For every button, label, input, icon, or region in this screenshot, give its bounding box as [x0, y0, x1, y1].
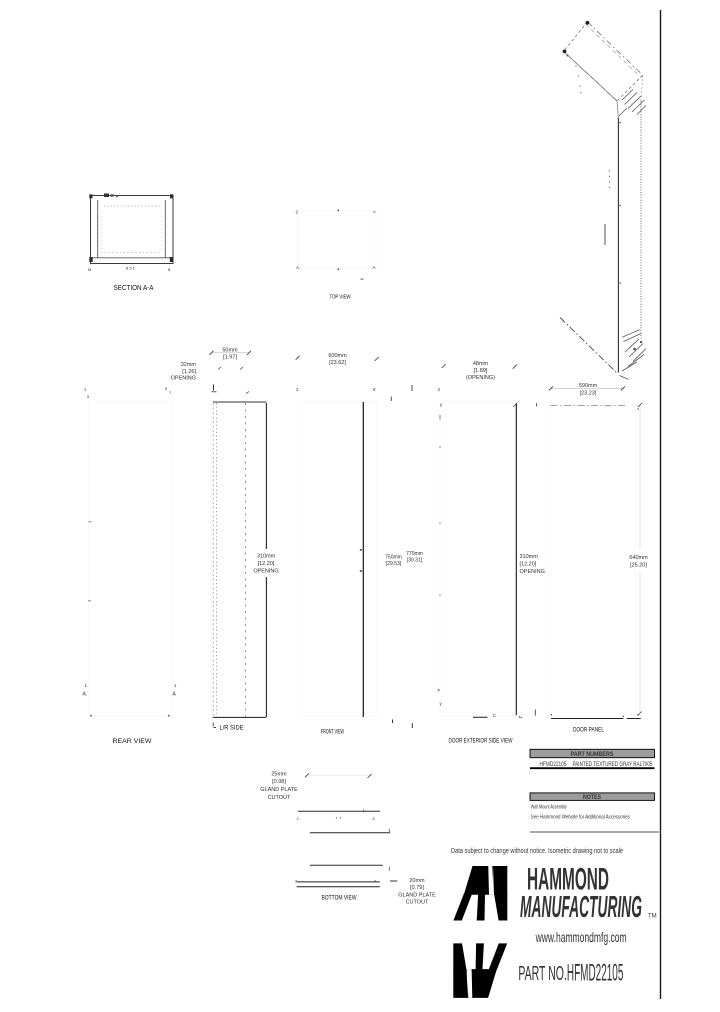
- svg-text:DOOR PANEL: DOOR PANEL: [573, 728, 605, 734]
- svg-text:[25.20]: [25.20]: [630, 563, 647, 569]
- svg-text:HFMD22105: HFMD22105: [540, 762, 568, 768]
- svg-text:CUTOUT: CUTOUT: [268, 795, 291, 801]
- svg-text:32mm: 32mm: [181, 362, 197, 368]
- svg-text:Data subject to change without: Data subject to change without notice. I…: [451, 848, 623, 855]
- svg-text:OPENING: OPENING: [520, 569, 545, 575]
- svg-text:PART NUMBERS: PART NUMBERS: [571, 752, 614, 758]
- svg-text:OPENING: OPENING: [253, 569, 278, 575]
- svg-text:SECTION A-A: SECTION A-A: [114, 285, 154, 292]
- svg-text:[1.89]: [1.89]: [474, 368, 488, 374]
- svg-text:[12.20]: [12.20]: [520, 562, 537, 568]
- svg-text:[30.31]: [30.31]: [407, 558, 423, 564]
- svg-text:[0.98]: [0.98]: [272, 779, 286, 785]
- svg-text:310mm: 310mm: [257, 554, 276, 560]
- svg-text:See Hammond Website for Additi: See Hammond Website for Additional Acces…: [531, 814, 630, 820]
- svg-text:600mm: 600mm: [328, 353, 347, 359]
- svg-text:OPENING: OPENING: [171, 376, 196, 382]
- svg-text:F: F: [438, 688, 441, 693]
- svg-text:[0.79]: [0.79]: [410, 885, 424, 891]
- svg-text:FRONT VIEW: FRONT VIEW: [321, 730, 344, 736]
- svg-text:310mm: 310mm: [520, 554, 539, 560]
- svg-text:Wall Mount Assembly: Wall Mount Assembly: [531, 805, 567, 811]
- svg-text:590mm: 590mm: [579, 383, 598, 389]
- svg-text:50mm: 50mm: [222, 348, 238, 354]
- svg-text:[1.26]: [1.26]: [182, 369, 196, 375]
- svg-text:TOP VIEW: TOP VIEW: [330, 295, 352, 301]
- svg-text:www.hammondmfg.com: www.hammondmfg.com: [535, 929, 627, 945]
- svg-text:M: M: [88, 267, 91, 272]
- svg-text:HFMD22105: HFMD22105: [567, 960, 624, 987]
- svg-text:640mm: 640mm: [629, 555, 648, 561]
- svg-text:[29.53]: [29.53]: [386, 561, 402, 567]
- svg-text:25mm: 25mm: [271, 771, 287, 777]
- svg-text:[23.23]: [23.23]: [580, 391, 597, 397]
- svg-text:PAINTED TEXTURED GRAY RAL7005: PAINTED TEXTURED GRAY RAL7005: [573, 762, 654, 768]
- svg-text:8 5 1: 8 5 1: [126, 266, 136, 271]
- svg-text:BOTTOM VIEW: BOTTOM VIEW: [322, 896, 357, 902]
- svg-text:A: A: [373, 265, 376, 270]
- svg-text:20mm: 20mm: [409, 878, 425, 884]
- svg-text:GLAND PLATE: GLAND PLATE: [398, 892, 436, 898]
- svg-text:48mm: 48mm: [473, 361, 489, 367]
- svg-text:A.: A.: [83, 692, 88, 698]
- svg-text:[12.20]: [12.20]: [258, 561, 275, 567]
- svg-text:[1.97]: [1.97]: [223, 355, 237, 361]
- svg-text:[23.62]: [23.62]: [329, 360, 346, 366]
- svg-text:DOOR EXTERIOR SIDE VIEW: DOOR EXTERIOR SIDE VIEW: [449, 739, 513, 745]
- svg-text:TM: TM: [648, 914, 657, 920]
- svg-text:NOTES: NOTES: [583, 795, 601, 801]
- svg-text:CUTOUT: CUTOUT: [406, 900, 429, 906]
- svg-text:A.: A.: [296, 265, 300, 270]
- svg-text:GLAND PLATE: GLAND PLATE: [260, 787, 298, 793]
- svg-text:MANUFACTURING: MANUFACTURING: [520, 889, 642, 924]
- svg-text:770mm: 770mm: [406, 551, 423, 557]
- svg-text:REAR VIEW: REAR VIEW: [113, 738, 153, 745]
- svg-text:(OPENING): (OPENING): [466, 375, 495, 381]
- svg-text:<: <: [373, 210, 376, 215]
- svg-text:750mm: 750mm: [385, 555, 402, 561]
- svg-text:PART NO.: PART NO.: [518, 963, 567, 985]
- svg-text:L/R SIDE: L/R SIDE: [220, 726, 244, 732]
